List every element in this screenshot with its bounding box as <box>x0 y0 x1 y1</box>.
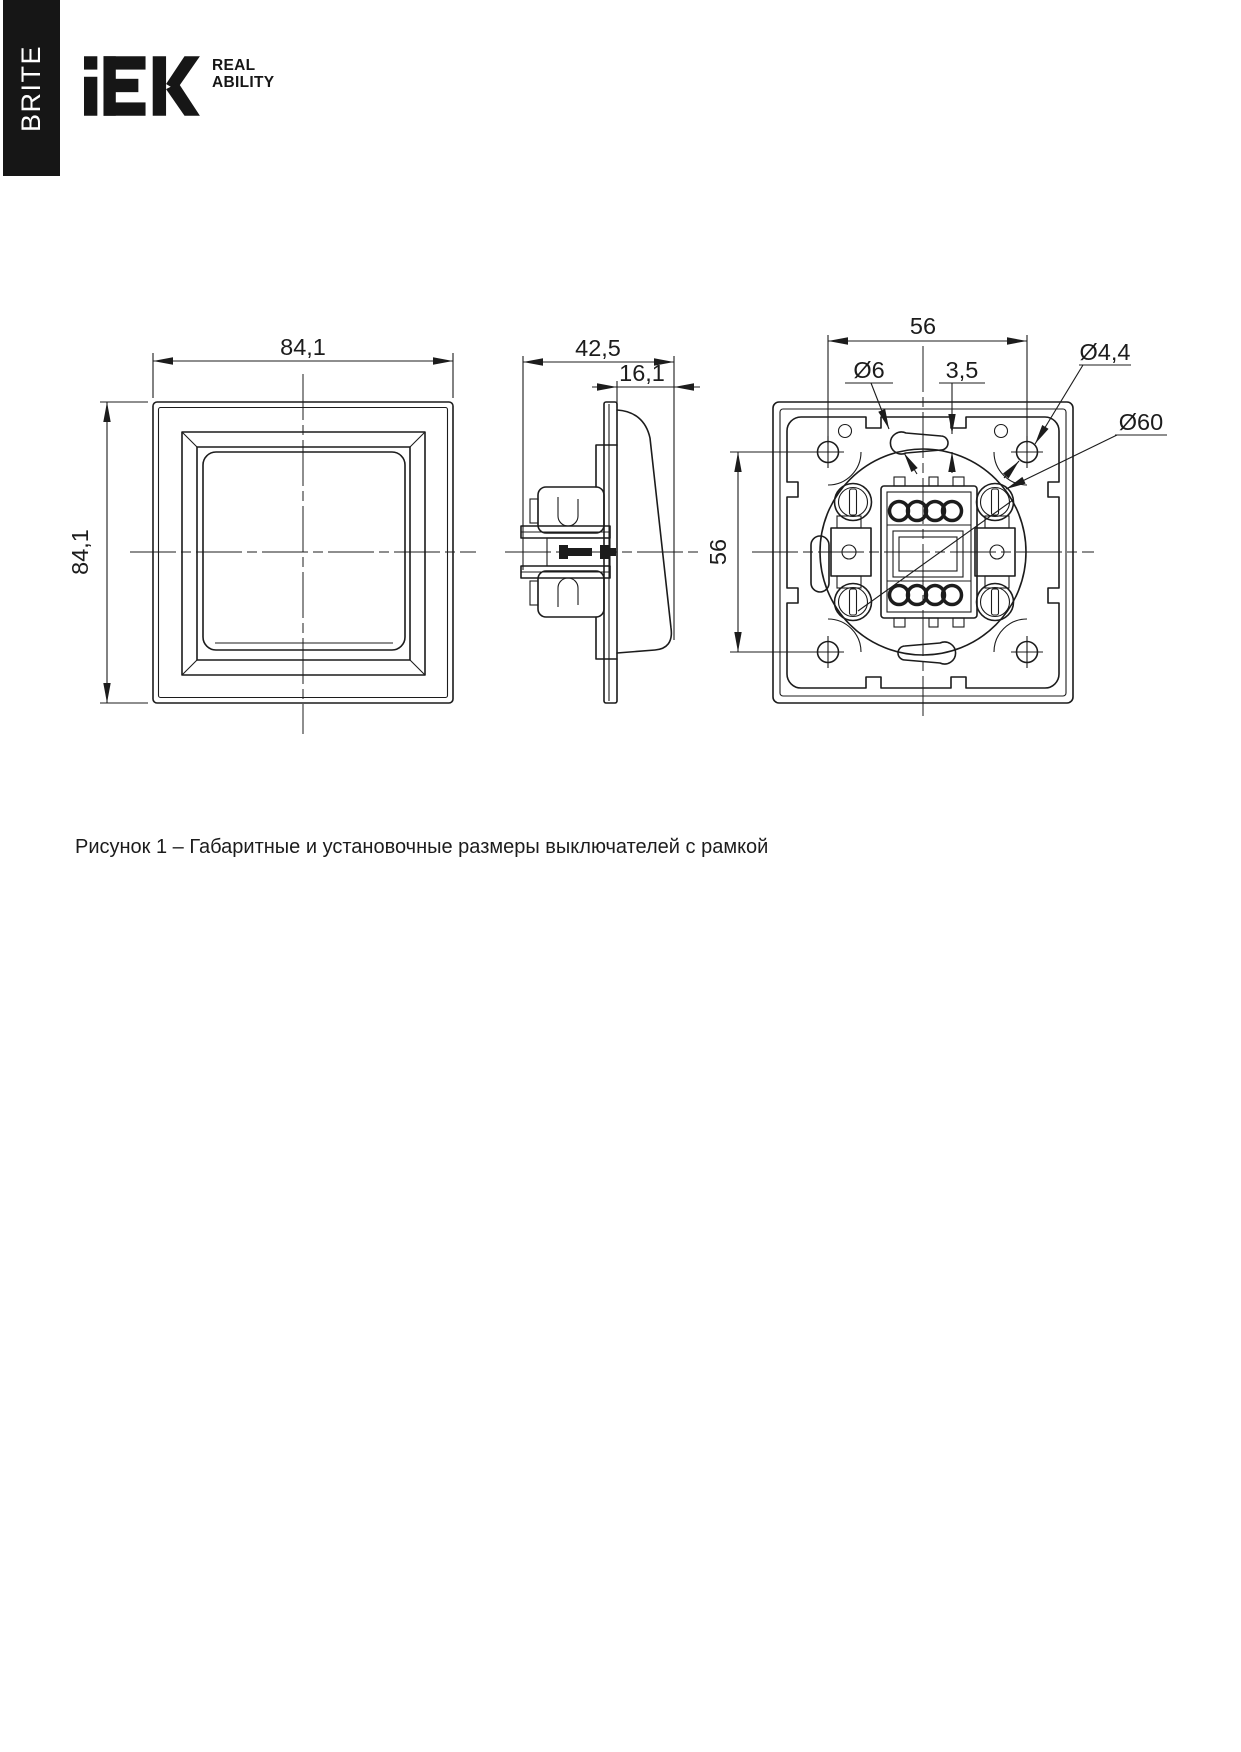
datasheet-page: BRITE REAL ABILITY <box>0 0 1241 1752</box>
brite-series-label: BRITE <box>16 44 47 131</box>
brite-series-tab: BRITE <box>3 0 60 176</box>
iek-tagline-line1: REAL <box>212 57 274 74</box>
iek-logo-glyphs <box>84 56 200 115</box>
mount-hole-diameter-label: Ø4,4 <box>1080 339 1131 365</box>
front-view-drawing: 84,1 84,1 <box>67 334 476 734</box>
slot-width-label: 3,5 <box>946 357 979 383</box>
back-top-fixing-slot <box>890 432 948 454</box>
back-hole-spacing-h-label: 56 <box>910 313 936 339</box>
terminal-wire-holes <box>890 502 962 605</box>
front-height-label: 84,1 <box>67 529 93 575</box>
back-hole-spacing-v-label: 56 <box>705 539 731 565</box>
iek-tagline-line2: ABILITY <box>212 74 274 91</box>
side-protrusion-label: 16,1 <box>619 360 665 386</box>
iek-logo-icon <box>84 55 204 117</box>
front-rocker-key <box>203 452 405 650</box>
iek-tagline: REAL ABILITY <box>212 57 274 91</box>
side-rocker-profile <box>617 410 671 653</box>
slot-diameter-label: Ø6 <box>853 357 884 383</box>
installation-diameter-callout: Ø60 <box>1006 409 1167 489</box>
back-mounting-holes <box>812 425 1043 669</box>
installation-diameter-label: Ø60 <box>1119 409 1163 435</box>
back-view-drawing: 56 56 Ø6 3,5 Ø4,4 <box>705 313 1167 716</box>
dimensional-drawing: 84,1 84,1 <box>0 280 1241 750</box>
side-view-drawing: 42,5 16,1 <box>505 335 700 703</box>
figure-caption: Рисунок 1 – Габаритные и установочные ра… <box>75 836 768 859</box>
side-housing-step-bottom <box>596 617 617 659</box>
side-protrusion-dimension: 16,1 <box>592 360 700 408</box>
front-width-label: 84,1 <box>280 334 326 360</box>
slot-diameter-callout: Ø6 <box>845 357 917 474</box>
slot-width-callout: 3,5 <box>939 357 985 473</box>
side-housing-step-top <box>596 445 617 487</box>
side-depth-label: 42,5 <box>575 335 621 361</box>
